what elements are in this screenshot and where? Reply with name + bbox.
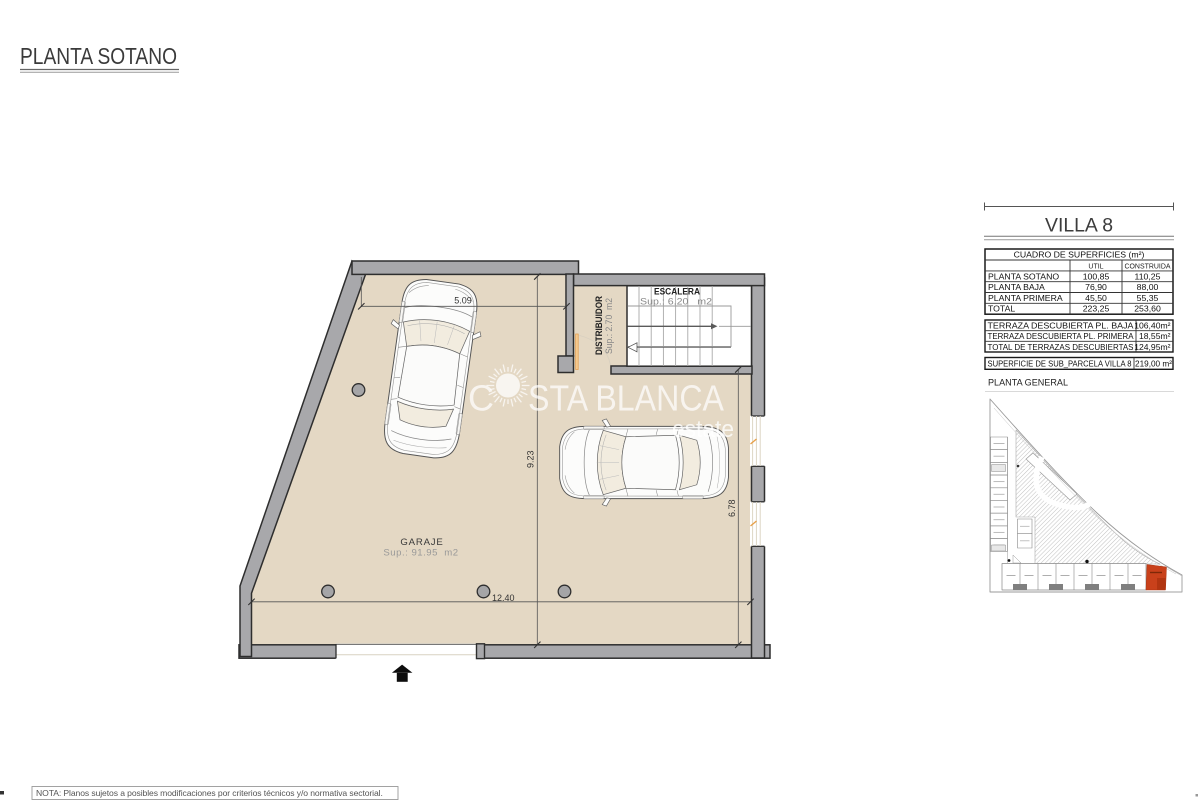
svg-text:Sup.: 2.70 m2: Sup.: 2.70 m2 bbox=[604, 298, 614, 354]
svg-text:12.40: 12.40 bbox=[492, 593, 515, 603]
svg-text:estate: estate bbox=[672, 416, 734, 443]
svg-text:55,35: 55,35 bbox=[1137, 293, 1159, 303]
svg-text:PLANTA SOTANO: PLANTA SOTANO bbox=[20, 43, 177, 69]
svg-text:223,25: 223,25 bbox=[1083, 304, 1110, 314]
svg-text:88,00: 88,00 bbox=[1137, 282, 1159, 292]
svg-text:110,25: 110,25 bbox=[1135, 271, 1161, 281]
svg-text:VILLA 8: VILLA 8 bbox=[1045, 216, 1113, 237]
svg-text:CUADRO DE SUPERFICIES (m²): CUADRO DE SUPERFICIES (m²) bbox=[1014, 250, 1145, 260]
svg-text:Sup.: 6.20 m2: Sup.: 6.20 m2 bbox=[640, 297, 712, 307]
svg-text:PLANTA PRIMERA: PLANTA PRIMERA bbox=[988, 293, 1063, 303]
svg-text:UTIL: UTIL bbox=[1088, 263, 1103, 270]
svg-text:18,55m²: 18,55m² bbox=[1139, 331, 1171, 341]
svg-text:CONSTRUIDA: CONSTRUIDA bbox=[1125, 263, 1171, 270]
svg-text:5.09: 5.09 bbox=[454, 296, 472, 306]
svg-text:TOTAL: TOTAL bbox=[988, 304, 1015, 314]
svg-text:253,60: 253,60 bbox=[1134, 304, 1161, 314]
svg-text:DISTRIBUIDOR: DISTRIBUIDOR bbox=[594, 296, 604, 355]
svg-text:PLANTA GENERAL: PLANTA GENERAL bbox=[988, 378, 1068, 389]
svg-text:106,40m²: 106,40m² bbox=[1134, 321, 1170, 331]
svg-text:45,50: 45,50 bbox=[1085, 293, 1107, 303]
svg-text:ESCALERA: ESCALERA bbox=[654, 287, 701, 297]
svg-text:PLANTA SOTANO: PLANTA SOTANO bbox=[988, 271, 1059, 281]
svg-text:219,00 m²: 219,00 m² bbox=[1135, 358, 1172, 368]
svg-text:TERRAZA DESCUBIERTA PL. BAJA: TERRAZA DESCUBIERTA PL. BAJA bbox=[988, 321, 1134, 331]
svg-text:TERRAZA DESCUBIERTA PL. PRIMER: TERRAZA DESCUBIERTA PL. PRIMERA bbox=[988, 331, 1134, 341]
svg-text:STA BLANCA: STA BLANCA bbox=[528, 378, 724, 419]
svg-text:100,85: 100,85 bbox=[1083, 271, 1110, 281]
svg-text:124,95m²: 124,95m² bbox=[1134, 342, 1170, 352]
svg-text:NOTA: Planos sujetos a posible: NOTA: Planos sujetos a posibles modifica… bbox=[36, 788, 383, 798]
svg-text:Sup.: 91.95 m2: Sup.: 91.95 m2 bbox=[383, 548, 458, 559]
svg-text:6.78: 6.78 bbox=[727, 499, 737, 517]
svg-text:SUPERFICIE DE SUB_PARCELA VILL: SUPERFICIE DE SUB_PARCELA VILLA 8 bbox=[988, 358, 1132, 368]
svg-text:76,90: 76,90 bbox=[1085, 282, 1107, 292]
svg-text:C: C bbox=[468, 378, 494, 419]
svg-text:TOTAL DE TERRAZAS DESCUBIERTAS: TOTAL DE TERRAZAS DESCUBIERTAS bbox=[988, 342, 1134, 352]
svg-text:PLANTA BAJA: PLANTA BAJA bbox=[988, 282, 1045, 292]
svg-text:9.23: 9.23 bbox=[526, 450, 536, 468]
svg-text:GARAJE: GARAJE bbox=[400, 537, 443, 548]
